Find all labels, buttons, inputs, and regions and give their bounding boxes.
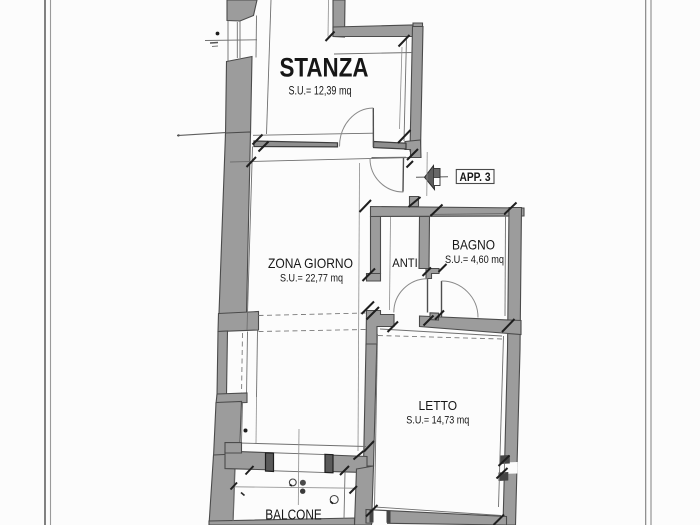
svg-text:BALCONE: BALCONE [265, 507, 322, 524]
svg-text:S.U.= 22,77 mq: S.U.= 22,77 mq [280, 273, 343, 285]
svg-text:APP. 3: APP. 3 [460, 172, 491, 184]
svg-text:S.U.= 4,60 mq: S.U.= 4,60 mq [445, 254, 504, 266]
svg-text:BAGNO: BAGNO [452, 238, 495, 253]
svg-text:S.U.= 14,73 mq: S.U.= 14,73 mq [406, 415, 469, 427]
svg-text:LETTO: LETTO [419, 398, 458, 413]
svg-text:S.U.= 12,39 mq: S.U.= 12,39 mq [289, 84, 352, 98]
svg-text:ANTI: ANTI [392, 256, 418, 270]
svg-text:ZONA GIORNO: ZONA GIORNO [268, 255, 353, 271]
svg-text:STANZA: STANZA [280, 53, 369, 83]
